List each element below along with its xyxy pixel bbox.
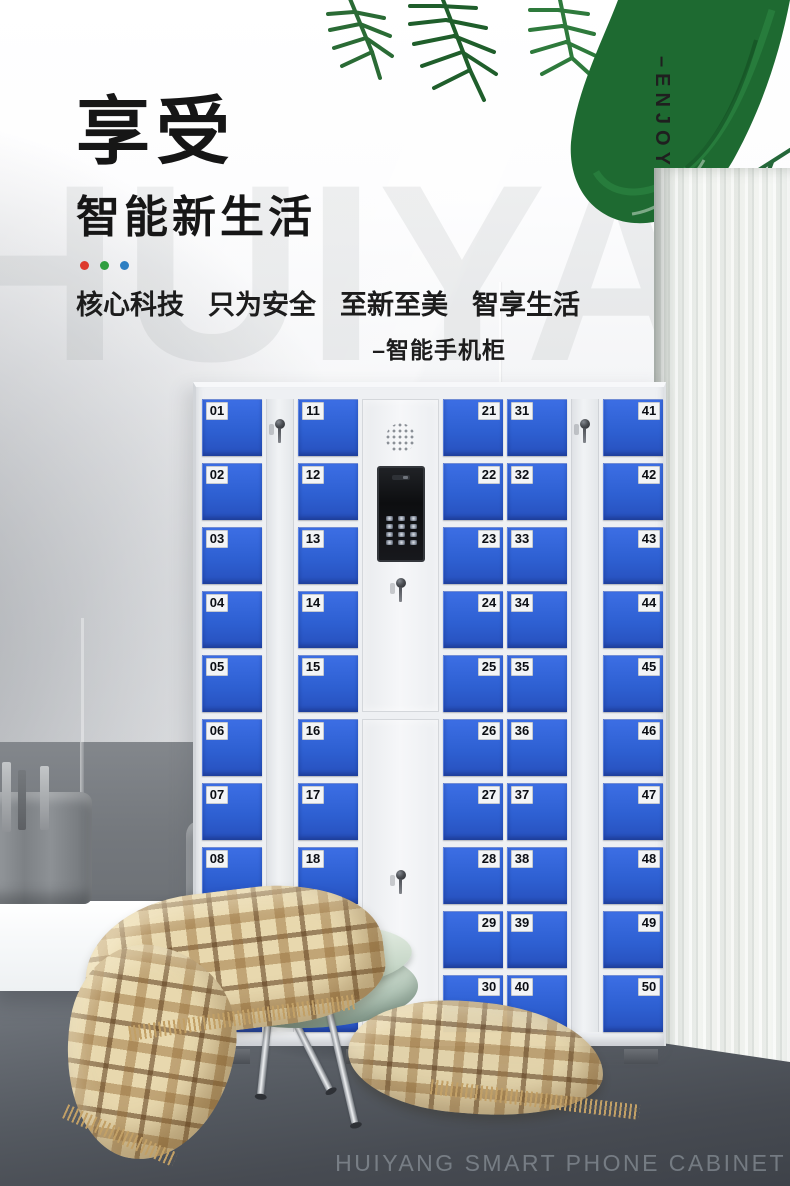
locker-door-29: 29: [443, 911, 503, 968]
accent-dots: [80, 261, 546, 270]
locker-door-21: 21: [443, 399, 503, 456]
door-number-label: 31: [511, 402, 533, 420]
door-number-label: 34: [511, 594, 533, 612]
locker-door-42: 42: [603, 463, 663, 520]
door-number-label: 01: [206, 402, 228, 420]
locker-door-01: 01: [202, 399, 262, 456]
door-number-label: 08: [206, 850, 228, 868]
keypad-key: [398, 516, 405, 521]
door-number-label: 33: [511, 530, 533, 548]
door-number-label: 07: [206, 786, 228, 804]
keypad-key: [410, 532, 417, 537]
keypad-key: [398, 524, 405, 529]
locker-door-24: 24: [443, 591, 503, 648]
locker-door-07: 07: [202, 783, 262, 840]
locker-door-04: 04: [202, 591, 262, 648]
keypad-key: [410, 524, 417, 529]
keyhole-with-key: [275, 419, 285, 429]
door-number-label: 37: [511, 786, 533, 804]
locker-door-22: 22: [443, 463, 503, 520]
locker-door-44: 44: [603, 591, 663, 648]
accent-dot: [100, 261, 109, 270]
door-number-label: 26: [478, 722, 500, 740]
door-number-label: 32: [511, 466, 533, 484]
door-number-label: 45: [638, 658, 660, 676]
keypad: [386, 516, 416, 545]
door-number-label: 05: [206, 658, 228, 676]
accent-dot: [120, 261, 129, 270]
locker-door-36: 36: [507, 719, 567, 776]
hero-text-block: 享受 智能新生活 核心科技只为安全至新至美智享生活 –智能手机柜: [76, 94, 546, 365]
locker-door-25: 25: [443, 655, 503, 712]
locker-door-45: 45: [603, 655, 663, 712]
keypad-key: [386, 540, 393, 545]
locker-door-47: 47: [603, 783, 663, 840]
door-number-label: 02: [206, 466, 228, 484]
door-number-label: 36: [511, 722, 533, 740]
locker-door-41: 41: [603, 399, 663, 456]
key-strip-right: [571, 399, 599, 1032]
door-number-label: 48: [638, 850, 660, 868]
locker-door-50: 50: [603, 975, 663, 1032]
locker-door-26: 26: [443, 719, 503, 776]
keyhole-with-key: [580, 419, 590, 429]
locker-door-46: 46: [603, 719, 663, 776]
vase-stick: [18, 770, 26, 830]
door-number-label: 35: [511, 658, 533, 676]
door-number-label: 47: [638, 786, 660, 804]
product-banner: HUIYANG 享受 智能新生活 核心科技只为安全至新至美智: [0, 0, 790, 1186]
door-number-label: 24: [478, 594, 500, 612]
tagline-item: 核心科技: [76, 283, 184, 322]
locker-door-48: 48: [603, 847, 663, 904]
door-number-label: 46: [638, 722, 660, 740]
door-number-label: 18: [302, 850, 324, 868]
door-number-label: 22: [478, 466, 500, 484]
door-number-label: 16: [302, 722, 324, 740]
locker-door-43: 43: [603, 527, 663, 584]
door-number-label: 30: [478, 978, 500, 996]
locker-door-05: 05: [202, 655, 262, 712]
door-number-label: 21: [478, 402, 500, 420]
locker-door-23: 23: [443, 527, 503, 584]
door-number-label: 17: [302, 786, 324, 804]
door-number-label: 03: [206, 530, 228, 548]
locker-door-17: 17: [298, 783, 358, 840]
door-number-label: 25: [478, 658, 500, 676]
cabinet-foot: [624, 1049, 658, 1064]
control-panel-door: [362, 399, 439, 712]
keyhole-with-key: [396, 578, 406, 588]
locker-door-28: 28: [443, 847, 503, 904]
locker-door-35: 35: [507, 655, 567, 712]
locker-door-27: 27: [443, 783, 503, 840]
locker-door-16: 16: [298, 719, 358, 776]
door-number-label: 43: [638, 530, 660, 548]
locker-door-03: 03: [202, 527, 262, 584]
keypad-key: [386, 532, 393, 537]
accent-dot: [80, 261, 89, 270]
door-number-label: 50: [638, 978, 660, 996]
keypad-key: [398, 532, 405, 537]
door-number-label: 39: [511, 914, 533, 932]
locker-door-31: 31: [507, 399, 567, 456]
locker-door-38: 38: [507, 847, 567, 904]
locker-door-06: 06: [202, 719, 262, 776]
tagline-item: 只为安全: [208, 283, 316, 322]
tagline-item: 智享生活: [472, 283, 580, 322]
door-number-label: 11: [302, 402, 324, 420]
locker-door-12: 12: [298, 463, 358, 520]
locker-door-15: 15: [298, 655, 358, 712]
door-number-label: 40: [511, 978, 533, 996]
locker-door-49: 49: [603, 911, 663, 968]
locker-door-34: 34: [507, 591, 567, 648]
keypad-key: [410, 540, 417, 545]
control-panel: [377, 466, 425, 562]
vase-stick: [40, 766, 49, 830]
speaker-grille: [385, 422, 417, 454]
locker-door-14: 14: [298, 591, 358, 648]
door-number-label: 42: [638, 466, 660, 484]
locker-door-39: 39: [507, 911, 567, 968]
keypad-key: [410, 516, 417, 521]
sheer-curtain: [654, 168, 790, 1074]
vase-stick: [2, 762, 11, 832]
door-number-label: 49: [638, 914, 660, 932]
door-number-label: 14: [302, 594, 324, 612]
decorative-vase: [0, 792, 92, 904]
door-number-label: 29: [478, 914, 500, 932]
keypad-key: [386, 524, 393, 529]
locker-column-41-50: 41424344454647484950: [603, 399, 663, 1039]
door-number-label: 23: [478, 530, 500, 548]
door-number-label: 12: [302, 466, 324, 484]
hero-note: –智能手机柜: [76, 331, 506, 365]
locker-door-37: 37: [507, 783, 567, 840]
locker-door-32: 32: [507, 463, 567, 520]
locker-column-21-30: 21222324252627282930: [443, 399, 503, 1039]
keypad-key: [398, 540, 405, 545]
camera-slot: [392, 475, 410, 480]
locker-column-31-40: 31323334353637383940: [507, 399, 567, 1039]
wall-seam: [81, 618, 84, 746]
hero-title: 享受: [76, 94, 546, 171]
door-number-label: 15: [302, 658, 324, 676]
locker-door-02: 02: [202, 463, 262, 520]
tagline-item: 至新至美: [340, 283, 448, 322]
door-number-label: 28: [478, 850, 500, 868]
door-number-label: 13: [302, 530, 324, 548]
hero-subtitle: 智能新生活: [76, 181, 546, 245]
locker-door-13: 13: [298, 527, 358, 584]
keyhole-with-key: [396, 870, 406, 880]
door-number-label: 44: [638, 594, 660, 612]
door-number-label: 27: [478, 786, 500, 804]
locker-door-11: 11: [298, 399, 358, 456]
keypad-key: [386, 516, 393, 521]
door-number-label: 06: [206, 722, 228, 740]
door-number-label: 04: [206, 594, 228, 612]
hero-tagline: 核心科技只为安全至新至美智享生活: [76, 283, 546, 322]
door-number-label: 38: [511, 850, 533, 868]
locker-door-33: 33: [507, 527, 567, 584]
door-number-label: 41: [638, 402, 660, 420]
floor-caption: HUIYANG SMART PHONE CABINET: [335, 1150, 786, 1177]
enjoy-vertical-label: –ENJOY: [650, 56, 673, 171]
